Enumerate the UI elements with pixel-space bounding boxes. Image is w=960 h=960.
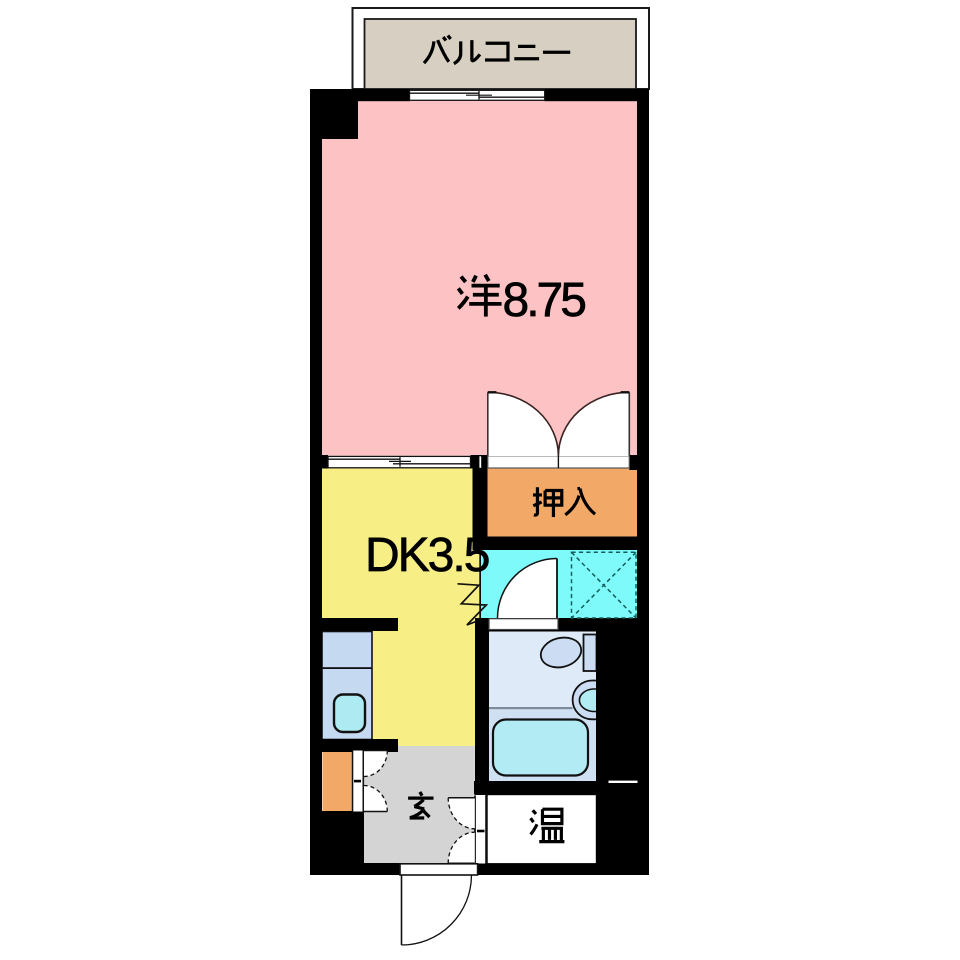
- svg-text:DK3.5: DK3.5: [365, 529, 489, 582]
- svg-text:8.75: 8.75: [503, 274, 586, 327]
